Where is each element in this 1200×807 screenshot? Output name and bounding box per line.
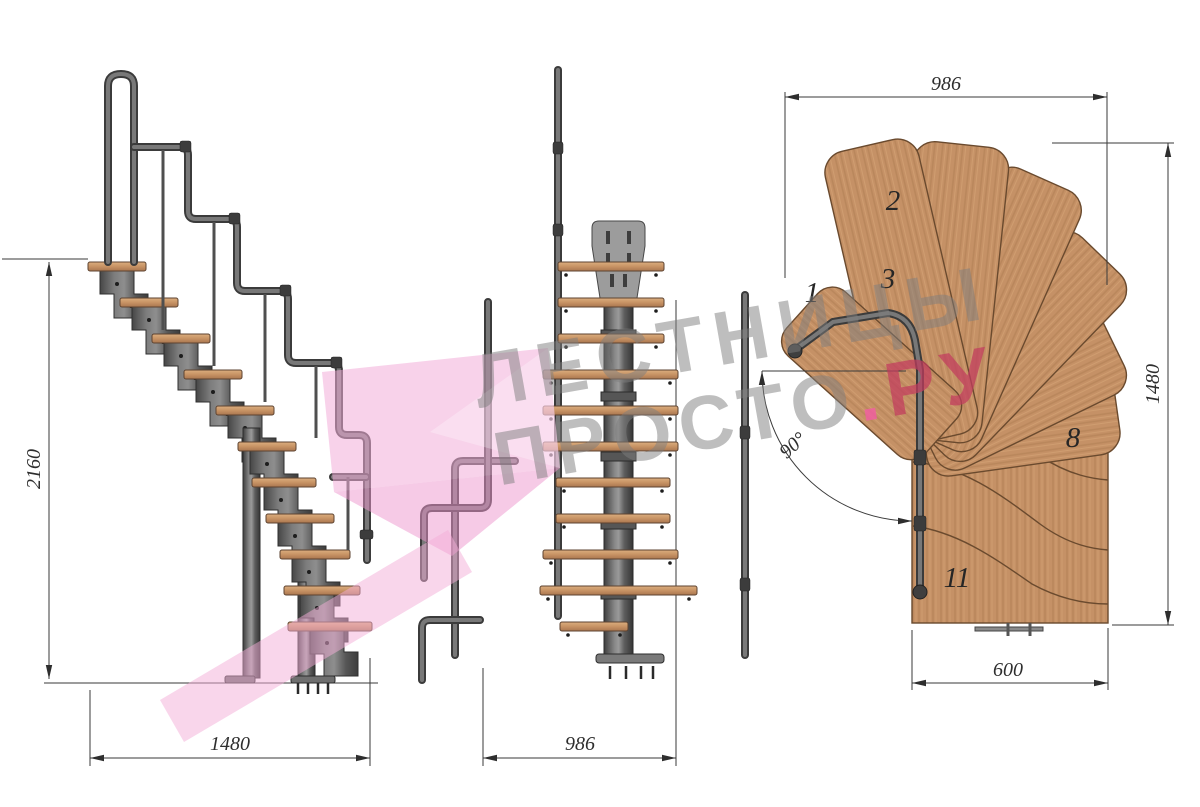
stair-technical-drawing: 2160 1480 <box>0 0 1200 807</box>
step-number-2: 2 <box>886 185 901 217</box>
top-mount-plate <box>592 221 645 298</box>
handrail-end-cap <box>913 585 927 599</box>
step-number-8: 8 <box>1066 422 1081 454</box>
side-view: 2160 1480 <box>2 74 378 766</box>
dim-label-side-width: 1480 <box>210 733 250 755</box>
plan-base-foot <box>975 623 1043 636</box>
dim-label-side-height: 2160 <box>23 449 45 489</box>
post-foot-bolted <box>291 676 335 694</box>
dim-label-plan-width: 986 <box>931 73 961 95</box>
handrail-loop <box>108 74 134 262</box>
dim-label-plan-depth: 1480 <box>1142 364 1164 404</box>
front-dimensions: 986 <box>483 733 676 758</box>
step-number-11: 11 <box>944 562 971 594</box>
stair-drawing-page: 2160 1480 <box>0 0 1200 807</box>
dim-label-front-width: 986 <box>565 733 595 755</box>
column-foot <box>596 654 664 679</box>
dim-label-flight-width: 600 <box>993 659 1023 681</box>
